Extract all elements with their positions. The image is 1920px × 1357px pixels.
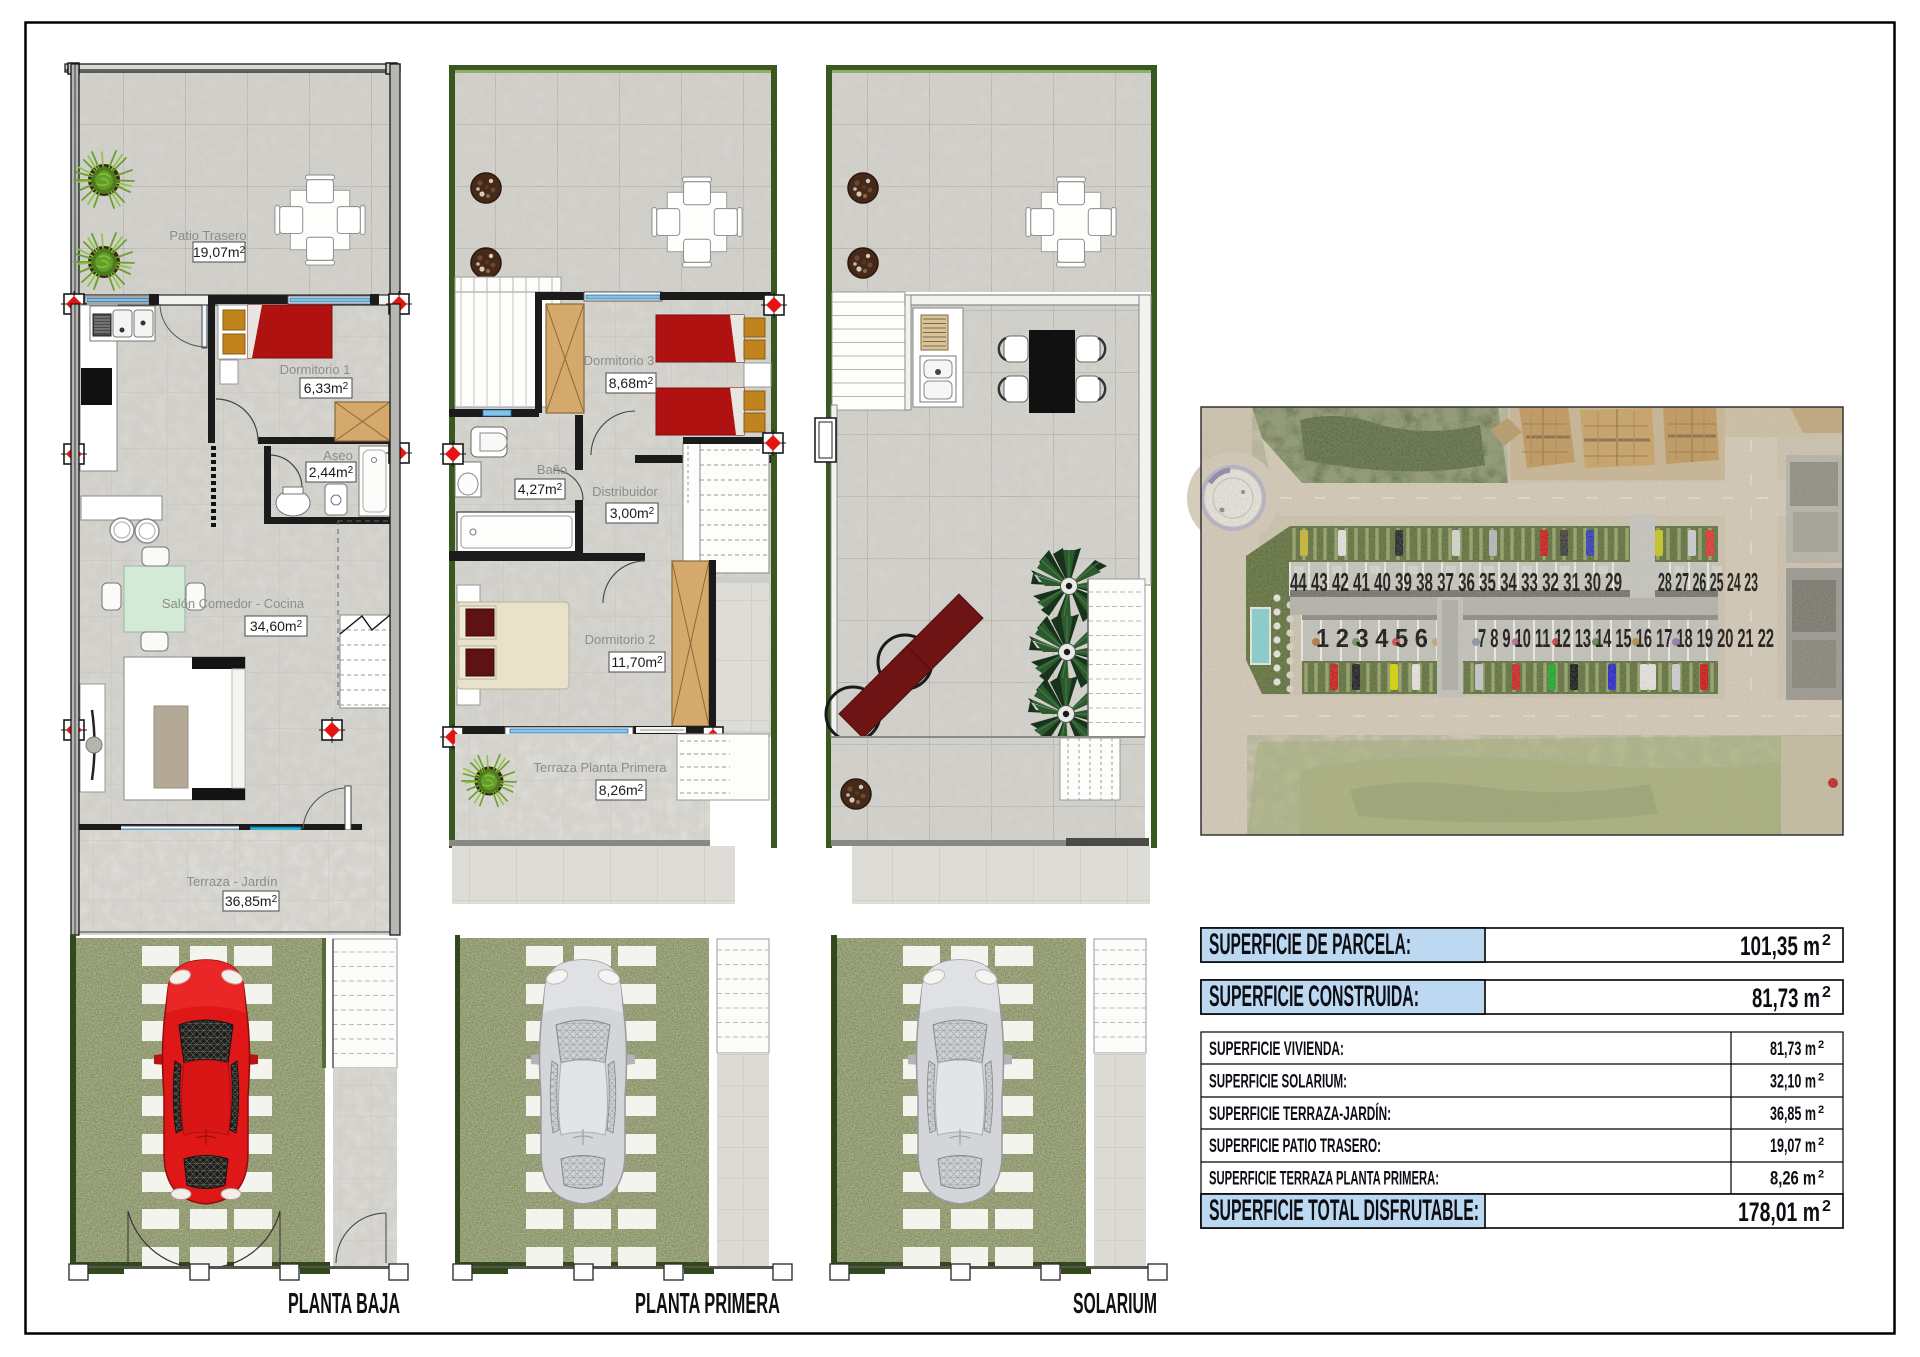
svg-text:SUPERFICIE CONSTRUIDA:: SUPERFICIE CONSTRUIDA:: [1209, 980, 1419, 1013]
svg-text:PLANTA PRIMERA: PLANTA PRIMERA: [635, 1288, 780, 1320]
svg-text:Salón Comedor - Cocina: Salón Comedor - Cocina: [162, 596, 305, 611]
svg-text:SOLARIUM: SOLARIUM: [1073, 1288, 1157, 1320]
svg-text:SUPERFICIE TERRAZA-JARDÍN:: SUPERFICIE TERRAZA-JARDÍN:: [1209, 1103, 1391, 1125]
svg-text:2: 2: [1818, 1104, 1824, 1116]
svg-text:8,26m2: 8,26m2: [599, 782, 644, 798]
svg-text:44 43 42 41 40 39 38 37 36 35: 44 43 42 41 40 39 38 37 36 35 34 33 32 3…: [1290, 567, 1622, 597]
svg-text:6,33m2: 6,33m2: [304, 380, 349, 396]
svg-text:3,00m2: 3,00m2: [610, 505, 655, 521]
svg-text:8,68m2: 8,68m2: [609, 375, 654, 391]
svg-text:11,70m2: 11,70m2: [611, 654, 663, 670]
svg-text:Terraza Planta Primera: Terraza Planta Primera: [534, 760, 668, 775]
svg-text:2: 2: [1822, 932, 1831, 949]
svg-text:SUPERFICIE TERRAZA PLANTA PRIM: SUPERFICIE TERRAZA PLANTA PRIMERA:: [1209, 1169, 1439, 1190]
svg-text:19,07 m: 19,07 m: [1770, 1136, 1816, 1157]
svg-text:SUPERFICIE SOLARIUM:: SUPERFICIE SOLARIUM:: [1209, 1071, 1347, 1092]
svg-text:Terraza - Jardín: Terraza - Jardín: [186, 874, 277, 889]
svg-text:SUPERFICIE PATIO TRASERO:: SUPERFICIE PATIO TRASERO:: [1209, 1136, 1381, 1157]
svg-text:PLANTA BAJA: PLANTA BAJA: [288, 1288, 400, 1320]
svg-text:32,10 m: 32,10 m: [1770, 1071, 1816, 1092]
svg-text:36,85 m: 36,85 m: [1770, 1104, 1816, 1125]
svg-text:Distribuidor: Distribuidor: [592, 484, 658, 499]
svg-text:36,85m2: 36,85m2: [225, 893, 278, 909]
svg-text:28 27 26 25 24 23: 28 27 26 25 24 23: [1658, 567, 1758, 597]
svg-text:Baño: Baño: [537, 462, 567, 477]
svg-text:19,07m2: 19,07m2: [193, 244, 246, 260]
svg-text:7 8 9 10 11 12 13 14 15 16: 7 8 9 10 11 12 13 14 15 16 17 18 19 20 2…: [1478, 623, 1774, 653]
svg-text:Dormitorio 1: Dormitorio 1: [280, 362, 351, 377]
svg-text:SUPERFICIE DE PARCELA:: SUPERFICIE DE PARCELA:: [1209, 928, 1411, 961]
svg-text:Patio Trasero: Patio Trasero: [169, 228, 246, 243]
svg-text:178,01 m: 178,01 m: [1738, 1197, 1820, 1227]
svg-text:2: 2: [1818, 1169, 1824, 1181]
svg-text:81,73 m: 81,73 m: [1770, 1039, 1816, 1060]
svg-text:34,60m2: 34,60m2: [250, 618, 303, 634]
svg-text:SUPERFICIE VIVIENDA:: SUPERFICIE VIVIENDA:: [1209, 1039, 1344, 1060]
svg-text:4,27m2: 4,27m2: [518, 481, 563, 497]
svg-text:1 2 3 4 5 6: 1 2 3 4 5 6: [1316, 623, 1428, 653]
svg-text:2,44m2: 2,44m2: [309, 464, 354, 480]
svg-text:8,26 m: 8,26 m: [1770, 1169, 1816, 1190]
svg-text:2: 2: [1818, 1039, 1824, 1051]
svg-text:2: 2: [1822, 1198, 1831, 1215]
svg-text:2: 2: [1822, 984, 1831, 1001]
svg-text:Aseo: Aseo: [323, 448, 353, 463]
svg-text:101,35 m: 101,35 m: [1740, 931, 1820, 961]
svg-text:Dormitorio 3: Dormitorio 3: [584, 353, 655, 368]
svg-text:2: 2: [1818, 1071, 1824, 1083]
svg-text:2: 2: [1818, 1136, 1824, 1148]
svg-text:SUPERFICIE TOTAL DISFRUTABLE:: SUPERFICIE TOTAL DISFRUTABLE:: [1209, 1194, 1479, 1227]
svg-text:81,73 m: 81,73 m: [1752, 983, 1820, 1013]
svg-text:Dormitorio 2: Dormitorio 2: [585, 632, 656, 647]
